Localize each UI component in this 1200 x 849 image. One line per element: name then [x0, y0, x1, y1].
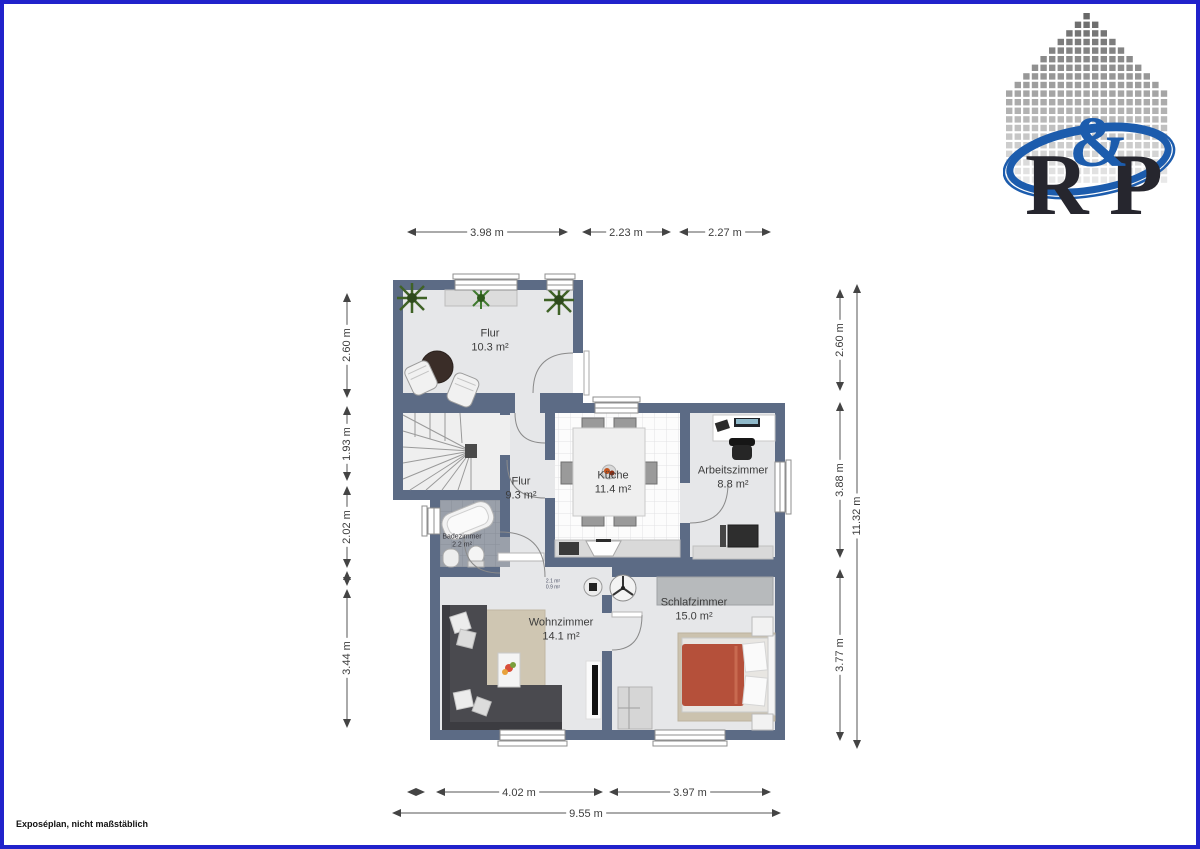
window-sill	[498, 741, 567, 746]
office-chair	[729, 438, 755, 446]
dim-top-1: 3.98 m	[467, 227, 507, 239]
room-label-kueche: Küche 11.4 m²	[595, 469, 631, 498]
window-sill	[545, 274, 575, 279]
pillow	[743, 642, 768, 672]
window-sill	[593, 397, 640, 402]
door	[602, 613, 612, 651]
chair	[561, 462, 573, 484]
cabinet	[728, 525, 758, 547]
window-sill	[453, 274, 519, 279]
room-label-badezimmer: Badezimmer 2.2 m²	[442, 534, 481, 551]
dim-right-2: 3.88 m	[834, 460, 846, 500]
door	[500, 567, 545, 577]
chair	[645, 462, 657, 484]
dim-bottom-total: 9.55 m	[566, 808, 606, 820]
ceiling-fan-icon	[610, 575, 636, 601]
door	[515, 393, 540, 413]
dim-left-4: 3.44 m	[341, 638, 353, 678]
dim-right-total: 11.32 m	[851, 494, 863, 539]
entrance-door	[573, 353, 583, 393]
plant-icon	[397, 283, 427, 313]
dim-right-3: 3.77 m	[834, 635, 846, 675]
dim-right-1: 2.60 m	[834, 320, 846, 360]
room-label-flur-mid: Flur 9.3 m²	[505, 475, 536, 504]
rp-logo: R & P	[1003, 10, 1178, 235]
window-sill	[786, 460, 791, 514]
window-sill	[422, 506, 427, 536]
exposé-page: R & P	[0, 0, 1200, 849]
room-label-schlafzimmer: Schlafzimmer 15.0 m²	[661, 596, 728, 625]
room-label-vestibule: 2.1 m² 0.9 m²	[546, 580, 560, 591]
dim-top-2: 2.23 m	[606, 227, 646, 239]
pillow	[457, 629, 476, 648]
pillow	[453, 690, 473, 710]
tv	[592, 665, 598, 715]
dim-top-3: 2.27 m	[705, 227, 745, 239]
dim-left-2: 1.93 m	[341, 424, 353, 464]
footer-note: Exposéplan, nicht maßstäblich	[16, 819, 148, 829]
dim-bottom-2: 3.97 m	[670, 787, 710, 799]
spotlight-icon	[584, 578, 602, 596]
pillow	[743, 676, 768, 706]
sideboard	[693, 546, 773, 559]
door	[545, 460, 555, 498]
washbasin	[443, 549, 459, 567]
dim-left-3: 2.02 m	[341, 507, 353, 547]
logo-letter-amp: &	[1069, 106, 1129, 178]
door	[680, 483, 690, 523]
window-sill	[653, 741, 727, 746]
nightstand	[752, 714, 773, 730]
building	[393, 274, 791, 746]
nightstand	[752, 617, 773, 636]
room-label-wohnzimmer: Wohnzimmer 14.1 m²	[529, 616, 594, 645]
stove	[559, 542, 579, 555]
room-label-arbeitszimmer: Arbeitszimmer 8.8 m²	[698, 464, 768, 493]
dim-bottom-1: 4.02 m	[499, 787, 539, 799]
dim-left-1: 2.60 m	[341, 325, 353, 365]
room-label-flur-top: Flur 10.3 m²	[471, 327, 508, 356]
